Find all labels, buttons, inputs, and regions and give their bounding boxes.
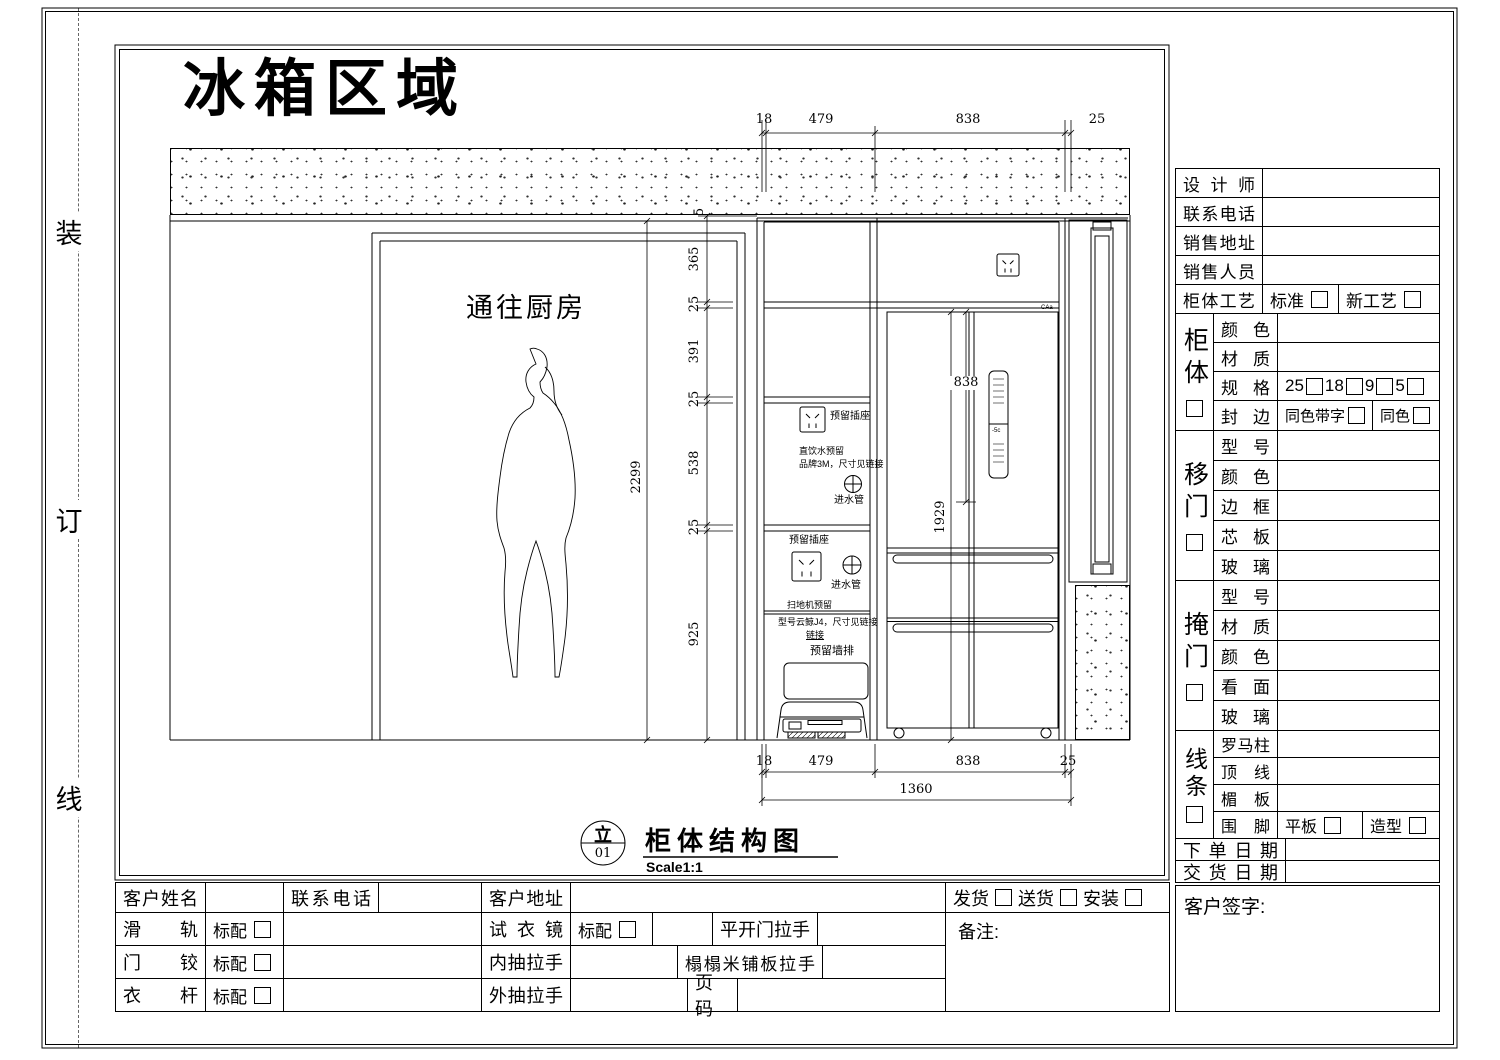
label-outer-drawer-handle: 外抽拉手 [481, 978, 571, 1012]
dim-left-25c: 25 [688, 497, 702, 557]
socket-icon [800, 407, 825, 432]
signature-label: 客户签字: [1184, 892, 1265, 919]
robot-vacuum-dock [777, 702, 867, 738]
label-sales-person: 销售人员 [1175, 255, 1263, 285]
label-fitting-mirror: 试衣镜 [481, 912, 571, 946]
water-inlet-icon [843, 556, 861, 574]
group-cabinet: 柜体 [1175, 313, 1214, 431]
fridge-display: -5c [992, 428, 1000, 434]
note-water-1: 直饮水预留 [799, 446, 844, 457]
group-trim: 线条 [1175, 730, 1214, 839]
label-hinged-color: 颜色 [1213, 640, 1278, 671]
binding-mark-2: 订 [54, 500, 84, 539]
field-door-hinge[interactable] [283, 945, 482, 979]
field-customer-name[interactable] [205, 882, 284, 913]
edge-sameword-checkbox[interactable] [1348, 407, 1365, 424]
notes-box[interactable]: 备注: [945, 912, 1170, 1012]
field-outer-drawer-mid[interactable] [570, 978, 688, 1012]
note-water-2: 品牌3M，尺寸见链接 [799, 459, 884, 470]
field-fitting-mirror[interactable] [652, 912, 713, 946]
field-order-date[interactable] [1285, 838, 1440, 861]
dim-door-height: 2299 [630, 447, 644, 507]
field-sales-person[interactable] [1262, 255, 1440, 285]
label-delivery-date: 交货日期 [1175, 860, 1286, 883]
field-customer-phone[interactable] [378, 882, 482, 913]
label-inner-drawer-handle: 内抽拉手 [481, 945, 571, 979]
field-page-number[interactable] [737, 978, 946, 1012]
field-customer-address[interactable] [570, 882, 946, 913]
drawing-scale: Scale1:1 [646, 859, 703, 875]
side-panel [1069, 220, 1127, 582]
door-label: 通往厨房 [466, 286, 586, 325]
field-hinged-model[interactable] [1277, 580, 1440, 611]
label-skirting: 围脚 [1213, 811, 1278, 839]
field-roman-column[interactable] [1277, 730, 1440, 758]
binding-mark-1: 装 [54, 212, 84, 251]
edge-same-option: 同色 [1372, 400, 1440, 431]
label-customer-name: 客户姓名 [115, 882, 206, 913]
field-sliding-frame[interactable] [1277, 490, 1440, 521]
socket-icon [792, 552, 821, 581]
ceiling-hatch [170, 148, 1130, 215]
field-cabinet-color[interactable] [1277, 313, 1440, 343]
label-sliding-core: 芯板 [1213, 520, 1278, 551]
cabinet-spec-options: 25 18 9 5 [1277, 371, 1440, 401]
field-contact-phone[interactable] [1262, 197, 1440, 227]
notes-label: 备注: [958, 918, 999, 944]
label-cabinet-edge: 封边 [1213, 400, 1278, 431]
craft-standard-option: 标准 [1262, 284, 1339, 314]
dim-left-925: 925 [688, 604, 702, 664]
spec-18-checkbox[interactable] [1346, 378, 1363, 395]
label-customer-phone: 联系电话 [283, 882, 379, 913]
label-clothes-rail: 衣杆 [115, 978, 206, 1012]
label-customer-address: 客户地址 [481, 882, 571, 913]
field-top-line[interactable] [1277, 757, 1440, 785]
group-hinged-door: 掩门 [1175, 580, 1214, 731]
view-tag-letter: 立 [589, 821, 617, 847]
note-inlet-upper: 进水管 [834, 495, 864, 506]
dim-bot-18: 18 [749, 755, 779, 769]
label-door-hinge: 门铰 [115, 945, 206, 979]
field-sliding-model[interactable] [1277, 430, 1440, 461]
label-sliding-glass: 玻璃 [1213, 550, 1278, 581]
dim-top-25: 25 [1082, 113, 1112, 127]
field-hinged-glass[interactable] [1277, 700, 1440, 731]
group-sliding-door: 移门 [1175, 430, 1214, 581]
dim-top-838: 838 [938, 113, 998, 127]
hinged-group-checkbox[interactable] [1186, 684, 1203, 701]
clothes-rail-standard: 标配 [205, 978, 284, 1012]
label-contact-phone: 联系电话 [1175, 197, 1263, 227]
install-checkbox[interactable] [1125, 889, 1142, 906]
field-designer[interactable] [1262, 168, 1440, 198]
craft-new-option: 新工艺 [1338, 284, 1440, 314]
fitting-mirror-checkbox[interactable] [619, 921, 636, 938]
trim-group-checkbox[interactable] [1186, 806, 1203, 823]
wall-drain-box [784, 663, 868, 699]
label-sales-address: 销售地址 [1175, 226, 1263, 256]
label-hinged-face: 看面 [1213, 670, 1278, 701]
label-sliding-model: 型号 [1213, 430, 1278, 461]
skirting-flat-option: 平板 [1277, 811, 1363, 839]
skirting-shaped-option: 造型 [1362, 811, 1440, 839]
note-inlet-lower: 进水管 [831, 580, 861, 591]
label-page-number: 页码 [687, 978, 738, 1012]
edge-sameword-option: 同色带字 [1277, 400, 1373, 431]
view-tag-number: 01 [589, 846, 617, 861]
label-cabinet-material: 材质 [1213, 342, 1278, 372]
field-sliding-glass[interactable] [1277, 550, 1440, 581]
dim-bot-total: 1360 [886, 783, 946, 797]
dim-left-25b: 25 [688, 369, 702, 429]
field-swing-door-handle[interactable] [817, 912, 946, 946]
dim-bot-25: 25 [1053, 755, 1083, 769]
craft-new-checkbox[interactable] [1404, 291, 1421, 308]
water-inlet-icon [845, 476, 862, 493]
dim-fridge-838: 838 [946, 376, 986, 390]
skirting-shaped-checkbox[interactable] [1409, 817, 1426, 834]
label-sliding-frame: 边框 [1213, 490, 1278, 521]
field-slide-rail[interactable] [283, 912, 482, 946]
dim-top-479: 479 [791, 113, 851, 127]
slide-rail-standard: 标配 [205, 912, 284, 946]
field-hinged-face[interactable] [1277, 670, 1440, 701]
field-cabinet-material[interactable] [1277, 342, 1440, 372]
dim-bot-479: 479 [791, 755, 851, 769]
note-socket-upper: 预留插座 [830, 411, 870, 422]
skirting-flat-checkbox[interactable] [1324, 817, 1341, 834]
field-lintel-board[interactable] [1277, 784, 1440, 812]
label-swing-door-handle: 平开门拉手 [712, 912, 818, 946]
slide-rail-checkbox[interactable] [254, 921, 271, 938]
craft-standard-checkbox[interactable] [1311, 291, 1328, 308]
note-vacuum-link[interactable]: 链接 [806, 630, 824, 641]
dim-fridge-1929: 1929 [934, 487, 948, 547]
field-tatami-handle[interactable] [822, 945, 946, 979]
note-wall-drain: 预留墙排 [810, 646, 854, 657]
label-hinged-material: 材质 [1213, 610, 1278, 641]
field-clothes-rail[interactable] [283, 978, 482, 1012]
person-figure [497, 348, 575, 677]
binding-mark-3: 线 [54, 778, 84, 817]
label-slide-rail: 滑轨 [115, 912, 206, 946]
field-delivery-date[interactable] [1285, 860, 1440, 883]
edge-same-checkbox[interactable] [1413, 407, 1430, 424]
fitting-mirror-standard: 标配 [570, 912, 653, 946]
cabinet-group-checkbox[interactable] [1186, 400, 1203, 417]
wall-hatch [1075, 585, 1130, 740]
label-lintel-board: 楣板 [1213, 784, 1278, 812]
clothes-rail-checkbox[interactable] [254, 987, 271, 1004]
label-hinged-glass: 玻璃 [1213, 700, 1278, 731]
field-hinged-color[interactable] [1277, 640, 1440, 671]
dim-top-18: 18 [749, 113, 779, 127]
drawing-caption: 柜体结构图 [645, 821, 805, 858]
sliding-group-checkbox[interactable] [1186, 534, 1203, 551]
label-hinged-model: 型号 [1213, 580, 1278, 611]
label-sliding-color: 颜色 [1213, 460, 1278, 491]
spec-9-checkbox[interactable] [1376, 378, 1393, 395]
label-cabinet-craft: 柜体工艺 [1175, 284, 1263, 314]
note-vacuum-1: 扫地机预留 [787, 600, 832, 611]
spec-25-checkbox[interactable] [1306, 378, 1323, 395]
field-inner-drawer-mid[interactable] [570, 945, 678, 979]
label-cabinet-spec: 规格 [1213, 371, 1278, 401]
note-vacuum-2: 型号云鲸J4，尺寸见链接 [778, 617, 878, 628]
field-sliding-color[interactable] [1277, 460, 1440, 491]
door-hinge-standard: 标配 [205, 945, 284, 979]
field-hinged-material[interactable] [1277, 610, 1440, 641]
shipping-options: 发货 送货 安装 [945, 882, 1170, 913]
spec-5-checkbox[interactable] [1407, 378, 1424, 395]
fridge-control-panel [989, 371, 1008, 478]
deliver-checkbox[interactable] [1060, 889, 1077, 906]
label-cabinet-color: 颜色 [1213, 313, 1278, 343]
label-top-line: 顶线 [1213, 757, 1278, 785]
field-sliding-core[interactable] [1277, 520, 1440, 551]
dim-left-538: 538 [688, 433, 702, 493]
note-socket-lower: 预留插座 [789, 535, 829, 546]
customer-signature-box[interactable]: 客户签字: [1175, 885, 1440, 1012]
label-designer: 设计师 [1175, 168, 1263, 198]
dim-bot-838: 838 [938, 755, 998, 769]
field-sales-address[interactable] [1262, 226, 1440, 256]
fridge-brand-logo: CAa [1041, 305, 1053, 311]
socket-icon [997, 254, 1019, 276]
label-roman-column: 罗马柱 [1213, 730, 1278, 758]
page-title: 冰箱区域 [183, 55, 467, 125]
door-hinge-checkbox[interactable] [254, 954, 271, 971]
ship-checkbox[interactable] [995, 889, 1012, 906]
